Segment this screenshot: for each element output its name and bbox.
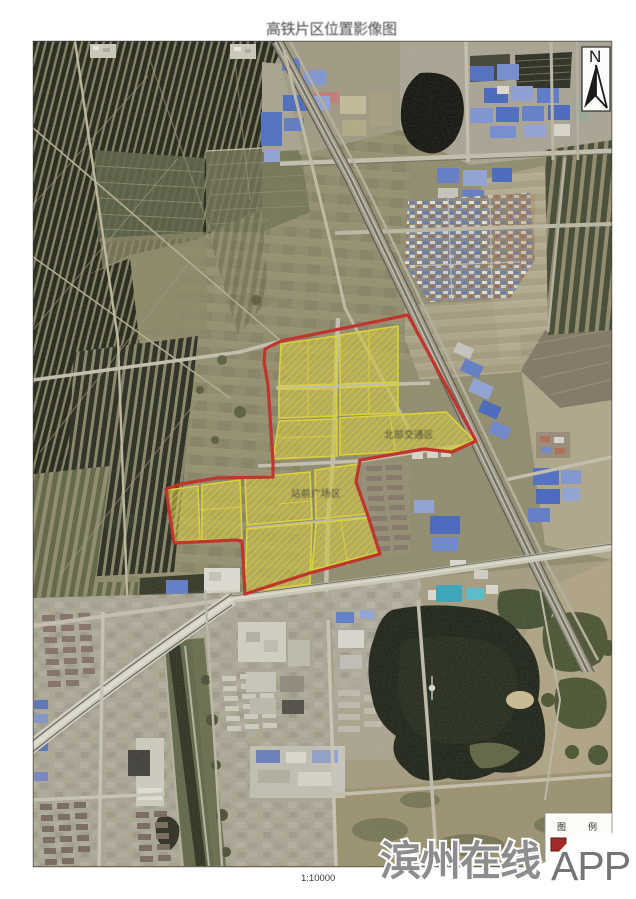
svg-text:高铁片区位置影像图: 高铁片区位置影像图	[266, 21, 397, 38]
svg-text:图例: 图例	[557, 821, 619, 832]
svg-text:N: N	[589, 47, 601, 66]
svg-text:滨州在线: 滨州在线	[380, 838, 541, 884]
svg-text:1:10000: 1:10000	[301, 873, 335, 884]
svg-text:APP: APP	[551, 843, 630, 889]
